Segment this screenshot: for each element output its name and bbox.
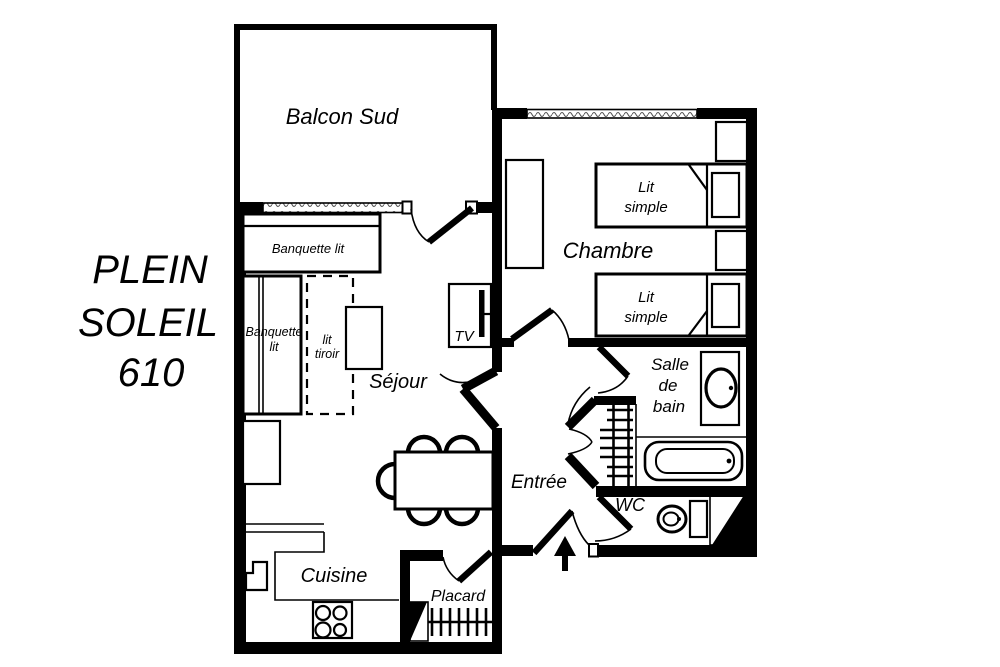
kitchen-label: Cuisine xyxy=(301,565,368,587)
chair-left xyxy=(378,464,395,498)
wc-door-arc xyxy=(595,529,631,541)
balcony-label: Balcon Sud xyxy=(286,104,399,129)
wall-bottom-outer xyxy=(234,642,502,654)
bedroom-label: Chambre xyxy=(563,238,653,263)
bathroom-door-leaf xyxy=(599,347,628,376)
wall-balcony-left xyxy=(234,24,240,208)
entry-door-arc xyxy=(572,511,589,545)
bed1-label-line1: Lit xyxy=(638,179,655,196)
wall-zigzag-2 xyxy=(463,389,496,428)
closet-duct-fill xyxy=(410,602,427,641)
shelf-unit-icon xyxy=(600,398,633,486)
bed2-pillow xyxy=(712,284,739,327)
bathtub-tap-dot xyxy=(727,459,732,464)
wall-bedroom-south xyxy=(568,338,757,347)
bedroom-window xyxy=(527,110,697,119)
title-line-3: 610 xyxy=(118,351,185,395)
tv-icon: TV xyxy=(449,284,492,347)
bathroom-label-line1: Salle xyxy=(651,355,689,374)
entry-arrow-head xyxy=(554,536,576,556)
nightstand-2-icon xyxy=(716,231,747,270)
banquette-v-label-line2: lit xyxy=(269,340,279,354)
closet-door-leaf xyxy=(459,552,491,581)
floor-plan: PLEIN SOLEIL 610 xyxy=(0,0,1000,667)
dining-table-top xyxy=(395,452,493,509)
drawer-bed-label-line1: lit xyxy=(322,333,332,347)
nightstand-1-icon xyxy=(716,122,747,161)
banquette-bed-horizontal-icon: Banquette lit xyxy=(243,214,380,272)
closet-door-arc xyxy=(443,557,459,581)
bedroom: Lit simple Lit simple Chambre xyxy=(506,122,747,336)
kitchen: Cuisine xyxy=(240,524,399,638)
bed-single-1-icon: Lit simple xyxy=(596,164,747,227)
bathroom-door-arc xyxy=(598,376,628,393)
living-label: Séjour xyxy=(369,371,428,393)
niche-lens-arc-1 xyxy=(569,429,592,442)
wall-entry-diag-upper xyxy=(568,400,595,427)
washbasin-icon xyxy=(701,352,739,425)
low-cabinet-icon xyxy=(243,421,280,484)
entry: Entrée xyxy=(511,472,567,493)
bedroom-door-arc xyxy=(552,310,569,340)
toilet-bowl-outer xyxy=(658,506,686,532)
wall-balcony-right xyxy=(491,24,497,110)
toilet-tank xyxy=(690,501,707,537)
closet-rod-icon xyxy=(428,608,492,636)
banquette-h-label: Banquette lit xyxy=(272,241,346,256)
wardrobe-icon xyxy=(506,160,543,268)
drawer-bed-label-line2: tiroir xyxy=(315,347,340,361)
entry-label: Entrée xyxy=(511,472,567,493)
entry-door-hinge-cap xyxy=(589,544,598,557)
bathroom-label-line2: de xyxy=(659,376,678,395)
tv-screen xyxy=(479,290,485,337)
wall-entry-stub xyxy=(502,545,533,556)
wall-sejour-top-left-stub xyxy=(240,202,263,213)
bathtub-icon xyxy=(645,442,742,480)
closet-duct-icon xyxy=(410,602,428,641)
bed1-label-line2: simple xyxy=(624,199,667,216)
wall-wc-bottom xyxy=(597,545,757,557)
banquette-v-label-line1: Banquette xyxy=(246,325,303,339)
wall-zigzag-1 xyxy=(463,371,496,389)
banquette-bed-vertical-icon: Banquette lit xyxy=(243,276,303,414)
wc-label: WC xyxy=(615,495,646,515)
toilet-icon xyxy=(658,501,707,537)
wc: WC xyxy=(615,490,746,545)
entry-arrow-shaft xyxy=(562,556,568,571)
wall-closet-left xyxy=(400,550,410,642)
balcony: Balcon Sud xyxy=(286,104,399,129)
kitchen-sink-outline xyxy=(246,562,267,590)
drawer-bed-icon: lit tiroir xyxy=(307,276,382,414)
bedroom-door-leaf xyxy=(512,310,552,339)
balcony-door-leaf xyxy=(429,208,472,242)
window-end-cap xyxy=(403,202,412,214)
bathroom-label-line3: bain xyxy=(653,397,685,416)
living-window xyxy=(263,203,403,213)
wc-duct-fill xyxy=(712,492,746,545)
bed2-label-line1: Lit xyxy=(638,289,655,306)
title-block: PLEIN SOLEIL 610 xyxy=(78,248,218,395)
stove-icon xyxy=(313,602,352,638)
bed1-pillow xyxy=(712,173,739,217)
entry-arrow-icon xyxy=(554,536,576,571)
closet-label: Placard xyxy=(431,588,486,605)
wc-duct-icon xyxy=(710,490,746,545)
wall-balcony-top xyxy=(234,24,497,30)
title-line-2: SOLEIL xyxy=(78,301,218,345)
closet: Placard xyxy=(410,588,492,641)
title-line-1: PLEIN xyxy=(92,248,208,292)
living-room: Banquette lit Banquette lit lit tiroir T… xyxy=(243,214,493,524)
floor-plan-page: PLEIN SOLEIL 610 xyxy=(0,0,1000,667)
toilet-dot xyxy=(677,517,681,521)
bed-single-2-icon: Lit simple xyxy=(596,274,747,336)
wall-bedroom-top-left xyxy=(492,108,527,119)
balcony-door-arc xyxy=(411,209,429,242)
dining-table-icon xyxy=(378,437,493,524)
niche-lens-arc-2 xyxy=(568,442,592,454)
wall-bedroom-south-stub xyxy=(502,338,514,347)
basin-tap-dot xyxy=(729,386,733,390)
bed2-label-line2: simple xyxy=(624,309,667,326)
wall-entry-diag-lower xyxy=(568,456,596,486)
wall-partition-upper xyxy=(492,108,502,372)
side-table-icon xyxy=(346,307,382,369)
tv-label: TV xyxy=(454,328,475,345)
